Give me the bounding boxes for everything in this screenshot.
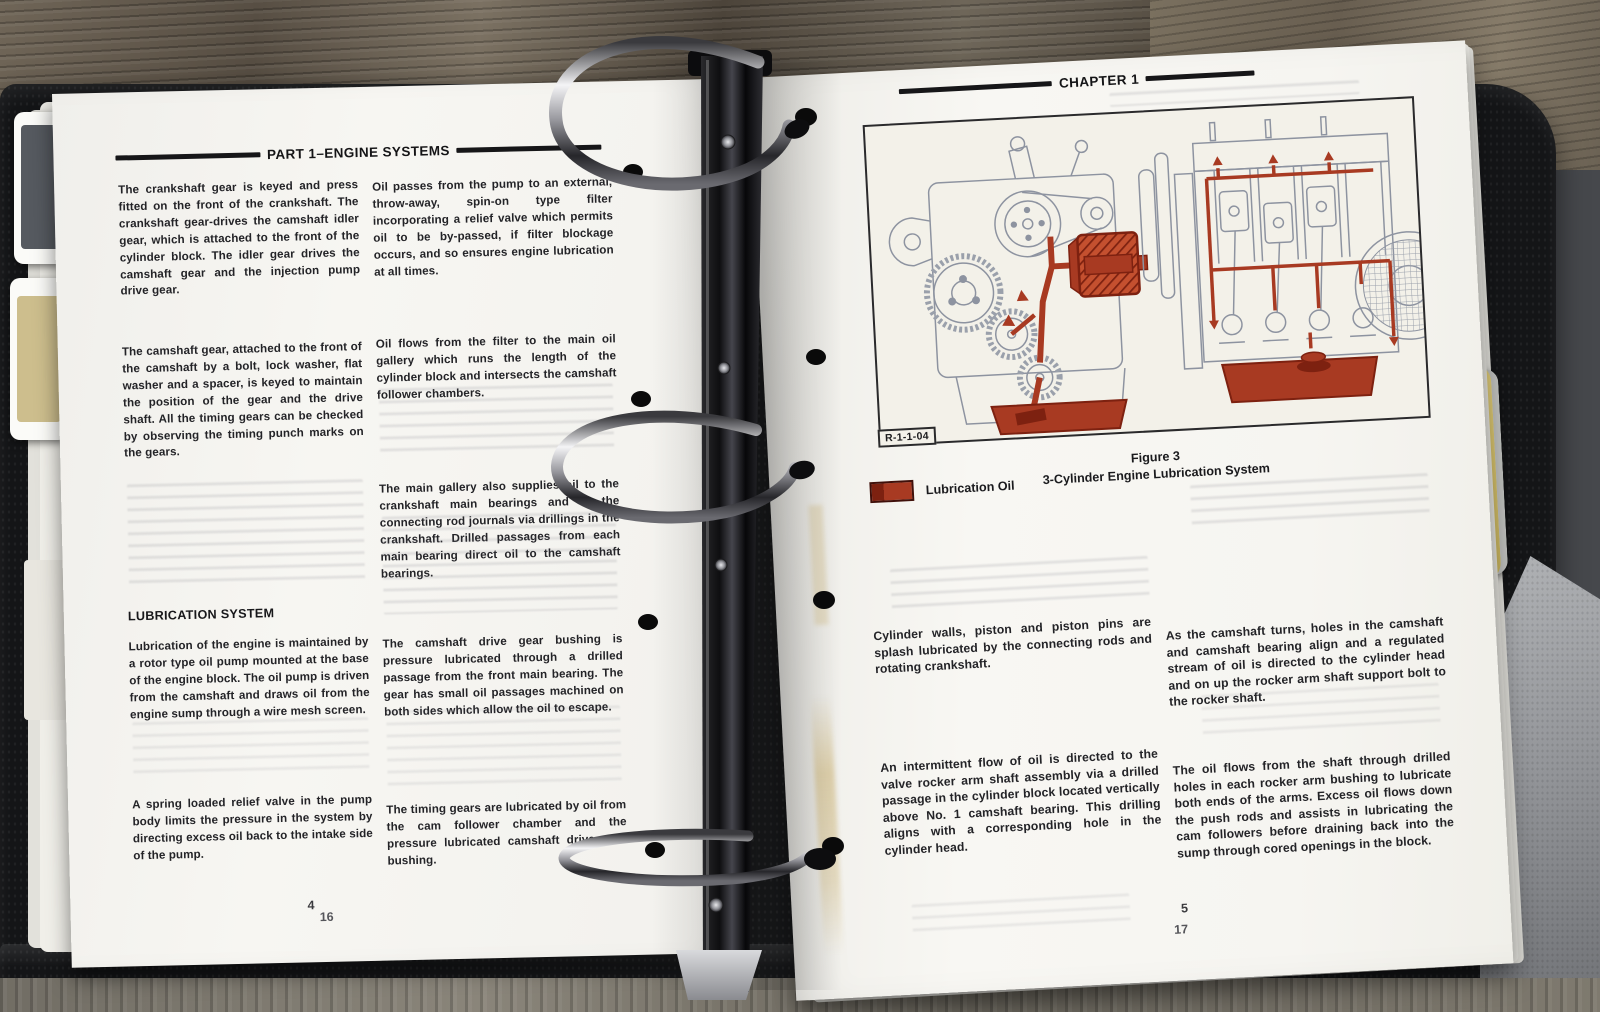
paragraph: A spring loaded relief valve in the pump… — [132, 792, 373, 865]
engine-side-view — [1136, 110, 1429, 406]
bleed-through-text — [1190, 473, 1430, 533]
index-tab-tan-insert — [17, 296, 61, 422]
page-edge-left — [24, 560, 68, 720]
left-page: PART 1–ENGINE SYSTEMS The crankshaft gea… — [52, 79, 732, 968]
header-rule-left — [899, 81, 1052, 94]
right-page: CHAPTER 1 — [748, 40, 1513, 1000]
header-rule-left — [115, 152, 260, 160]
paragraph: Oil flows from the filter to the main oi… — [376, 331, 617, 404]
figure-ref-code: R-1-1-04 — [878, 427, 937, 448]
page-number: 4 — [307, 898, 314, 912]
page-stain — [810, 695, 844, 956]
engine-lubrication-diagram — [865, 98, 1429, 444]
engine-front-view — [884, 130, 1156, 439]
paragraph: Oil passes from the pump to an external,… — [372, 174, 614, 281]
page-number: 5 — [1181, 901, 1189, 915]
right-page-header: CHAPTER 1 — [899, 65, 1255, 99]
bleed-through-text — [890, 556, 1150, 609]
figure-3-box: R-1-1-04 — [863, 96, 1431, 446]
paragraph: Lubrication of the engine is maintained … — [128, 634, 370, 724]
page-stain — [808, 505, 828, 626]
paragraph: The main gallery also supplies oil to th… — [379, 476, 621, 583]
page-number-alt: 16 — [320, 910, 334, 924]
section-heading: LUBRICATION SYSTEM — [128, 606, 275, 623]
paragraph: The oil flows from the shaft through dri… — [1172, 748, 1455, 862]
paragraph: The camshaft gear, attached to the front… — [122, 339, 365, 463]
page-number-alt: 17 — [1174, 922, 1189, 937]
lubrication-oil-swatch — [869, 480, 914, 503]
bleed-through-text — [911, 893, 1130, 932]
paragraph: Cylinder walls, piston and piston pins a… — [873, 614, 1153, 678]
header-rule-right — [1146, 71, 1255, 81]
left-page-header: PART 1–ENGINE SYSTEMS — [115, 140, 601, 166]
bleed-through-text — [132, 717, 369, 780]
legend-label: Lubrication Oil — [925, 478, 1014, 497]
right-page-title: CHAPTER 1 — [1059, 72, 1140, 91]
paragraph: The camshaft drive gear bushing is press… — [382, 631, 624, 721]
binder-photo: PART 1–ENGINE SYSTEMS The crankshaft gea… — [0, 0, 1600, 1012]
paragraph: The timing gears are lubricated by oil f… — [386, 797, 627, 870]
paragraph: The crankshaft gear is keyed and press f… — [118, 177, 361, 301]
paragraph: As the camshaft turns, holes in the cams… — [1165, 613, 1447, 710]
header-rule-right — [457, 145, 602, 153]
left-page-title: PART 1–ENGINE SYSTEMS — [267, 143, 450, 162]
paragraph: An intermittent flow of oil is directed … — [880, 745, 1163, 859]
bleed-through-text — [127, 479, 365, 592]
